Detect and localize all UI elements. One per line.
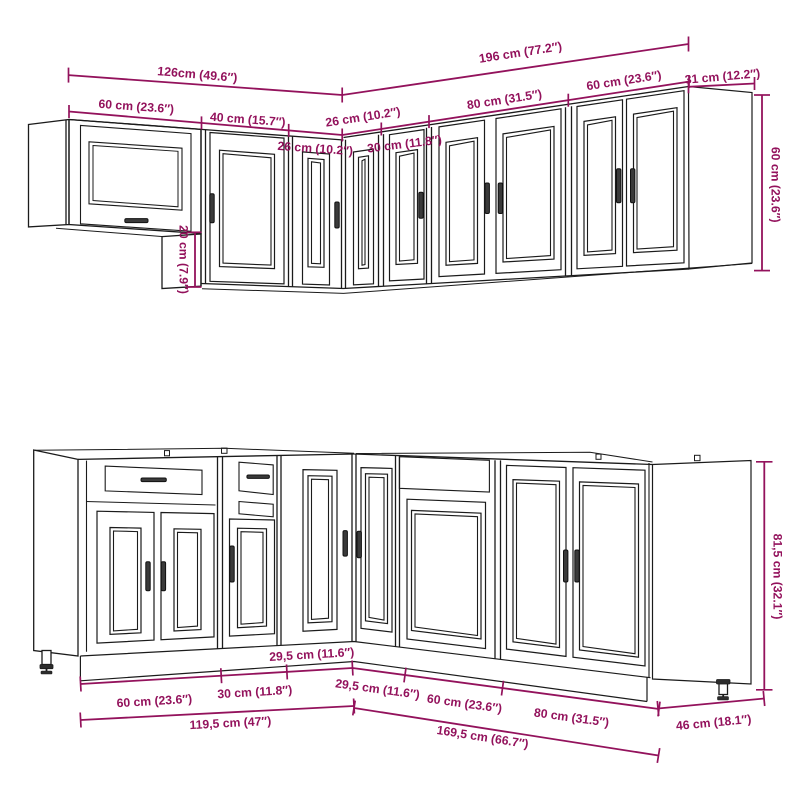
svg-text:60 cm (23.6″): 60 cm (23.6″) [769, 147, 783, 223]
svg-text:81,5 cm (32.1″): 81,5 cm (32.1″) [771, 534, 785, 620]
svg-text:20 cm (7.9″): 20 cm (7.9″) [177, 225, 191, 294]
